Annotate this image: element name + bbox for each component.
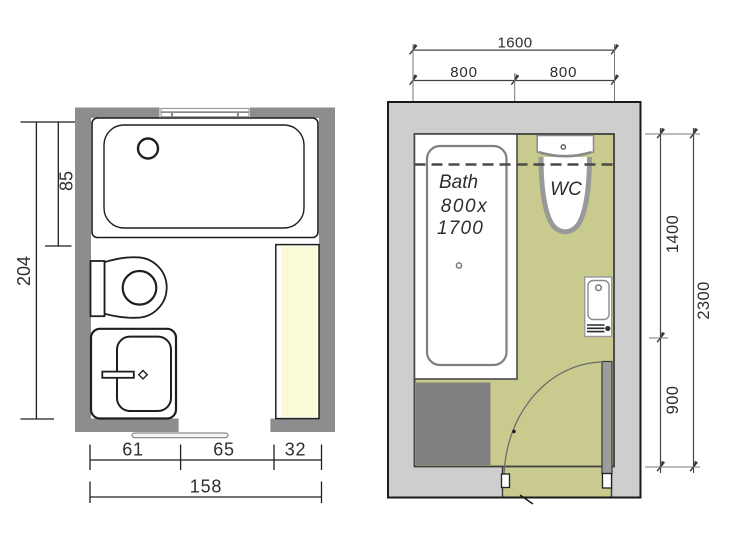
svg-text:65: 65 (213, 440, 235, 460)
svg-text:204: 204 (14, 256, 34, 286)
svg-text:WC: WC (550, 179, 582, 200)
svg-text:Bath: Bath (439, 172, 478, 193)
svg-text:800: 800 (450, 64, 477, 81)
svg-text:158: 158 (190, 477, 222, 497)
svg-text:1400: 1400 (664, 215, 682, 253)
svg-text:800: 800 (550, 64, 577, 81)
svg-text:900: 900 (664, 386, 682, 415)
svg-text:1700: 1700 (437, 218, 484, 239)
svg-text:2300: 2300 (695, 281, 713, 319)
svg-text:32: 32 (285, 440, 307, 460)
svg-text:61: 61 (122, 440, 144, 460)
svg-text:1600: 1600 (498, 34, 533, 51)
svg-text:85: 85 (57, 171, 77, 191)
svg-text:800x: 800x (441, 196, 489, 217)
